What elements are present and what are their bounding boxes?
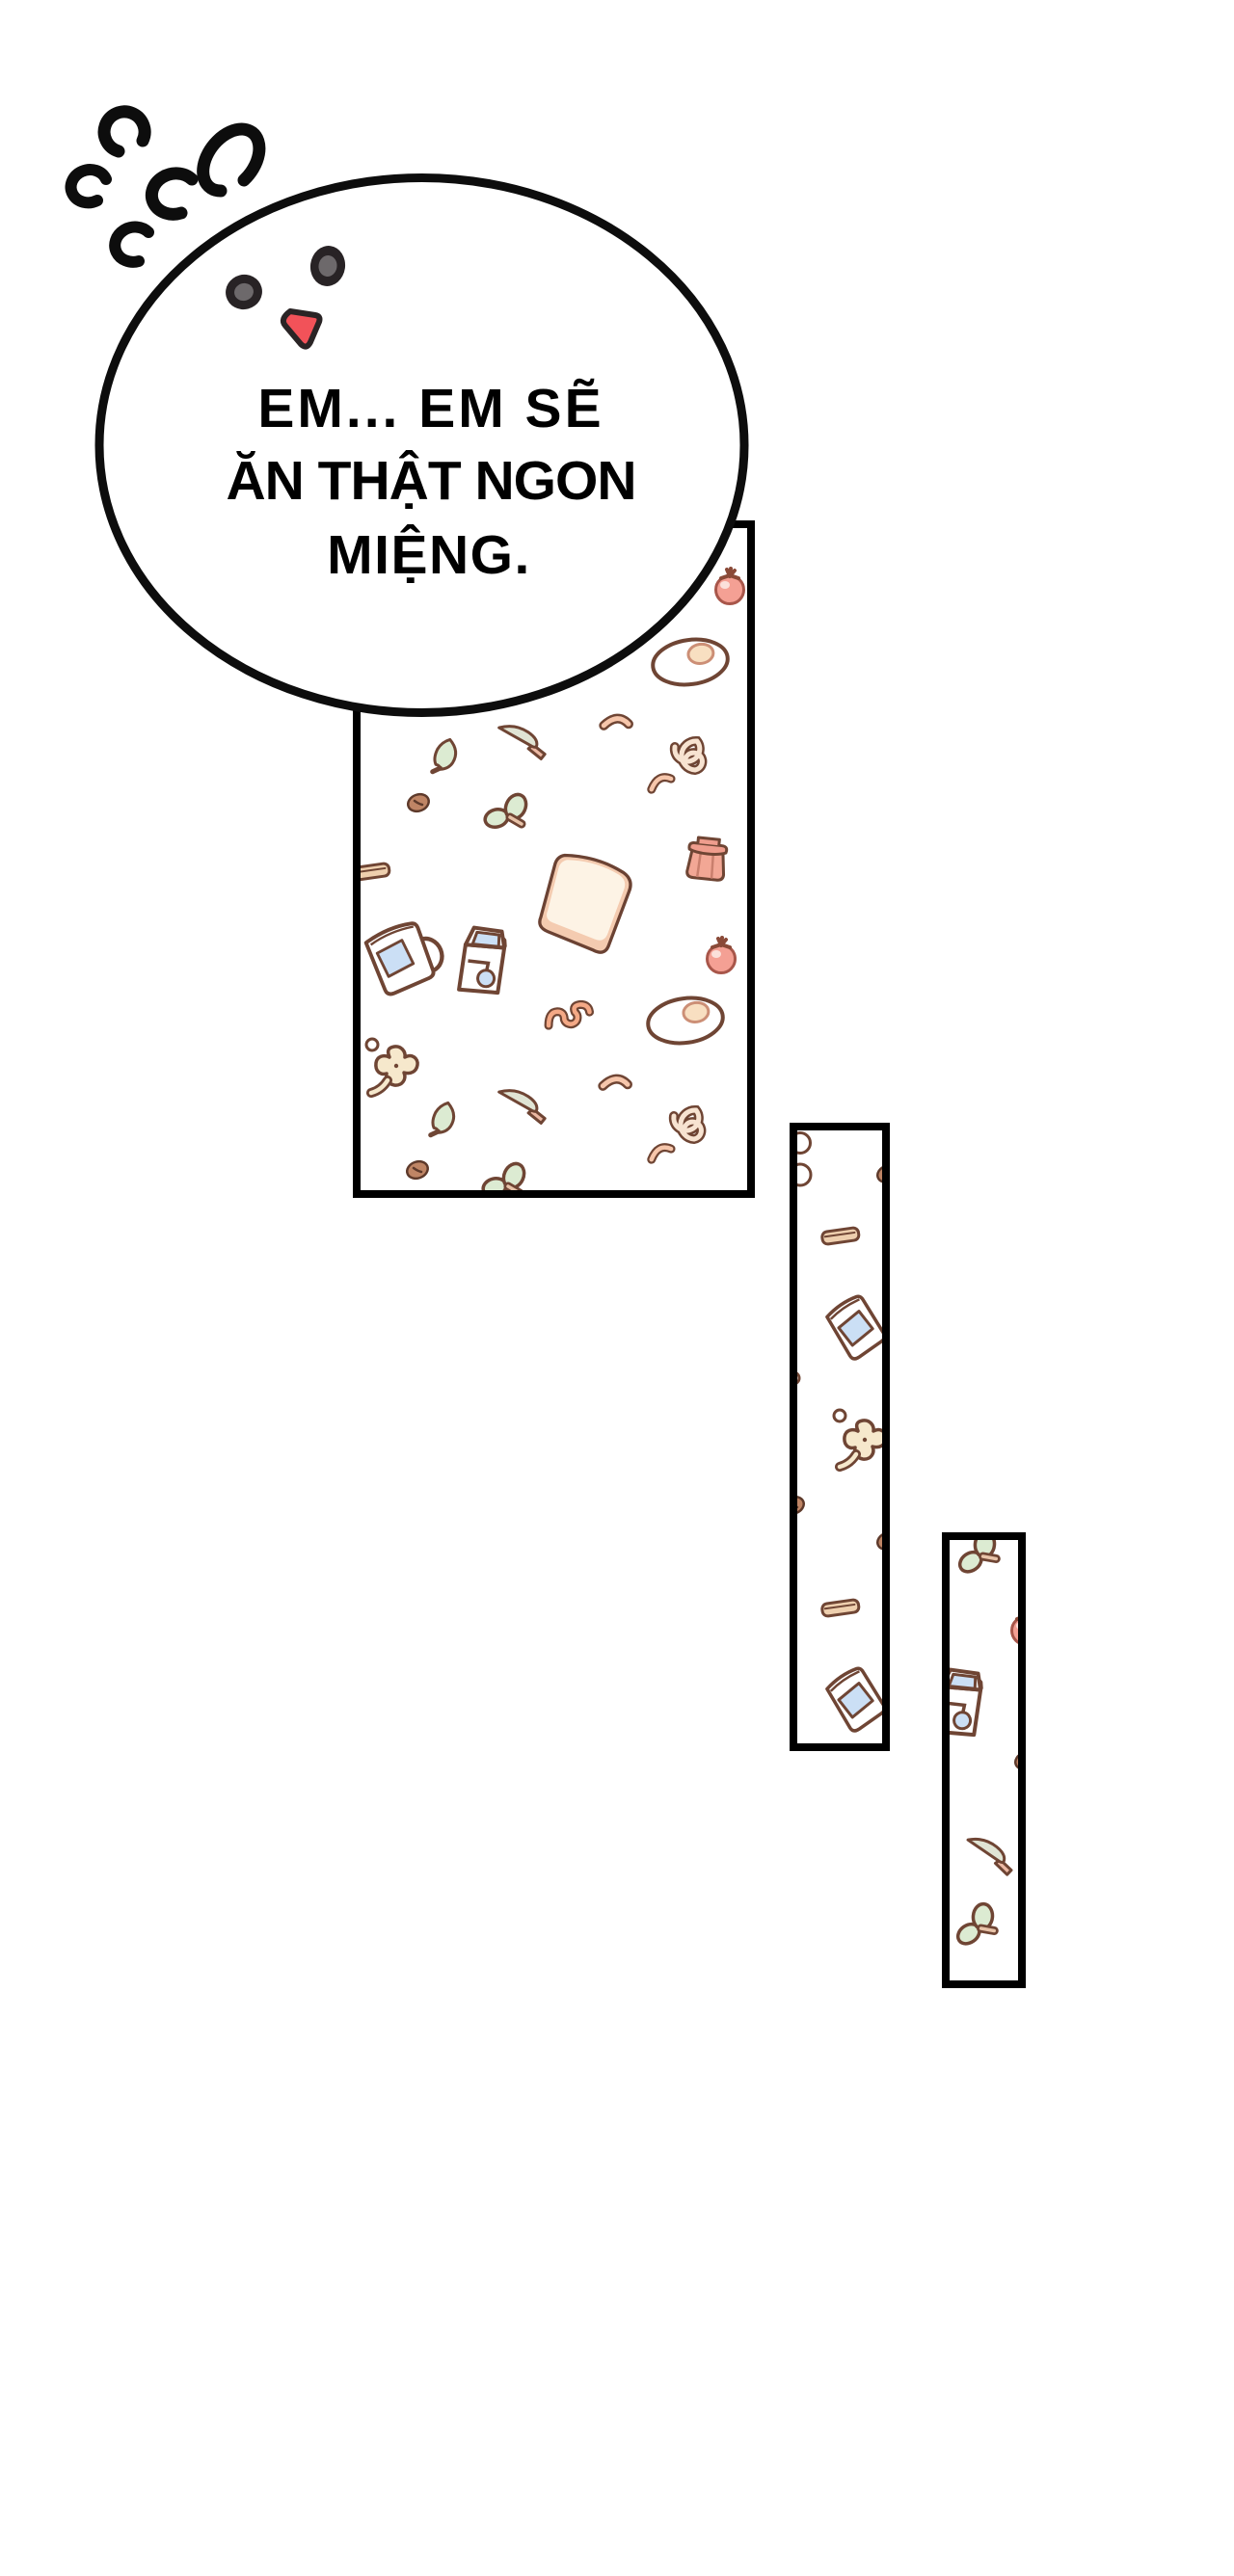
svg-text:EM... EM SẼ: EM... EM SẼ [257, 378, 604, 439]
svg-text:ĂN THẬT NGON: ĂN THẬT NGON [227, 449, 636, 512]
svg-text:MIỆNG.: MIỆNG. [327, 523, 531, 586]
